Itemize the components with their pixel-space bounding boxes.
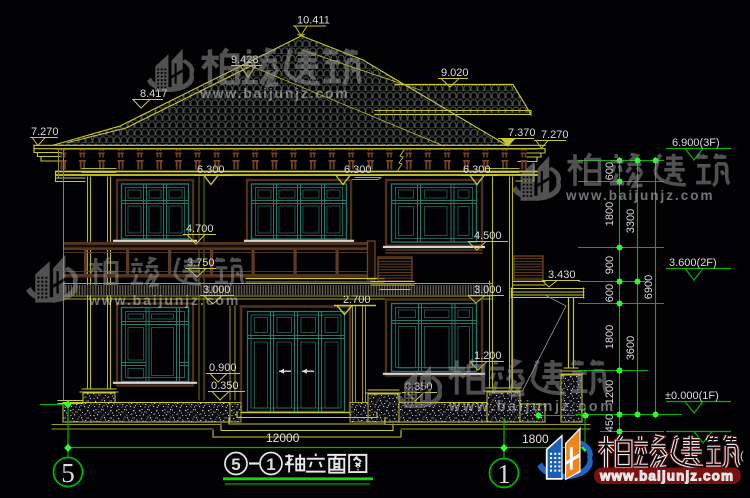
svg-text:1800: 1800: [522, 432, 549, 446]
svg-text:2.700: 2.700: [343, 294, 371, 306]
svg-text:4.700: 4.700: [186, 223, 214, 235]
svg-text:1: 1: [497, 459, 511, 489]
svg-text:9.020: 9.020: [441, 67, 469, 79]
svg-text:3.000: 3.000: [474, 284, 502, 296]
svg-text:www.baijunjz.com: www.baijunjz.com: [599, 469, 734, 484]
svg-text:12000: 12000: [266, 431, 300, 445]
svg-text:7.370: 7.370: [508, 127, 536, 139]
svg-text:3600: 3600: [625, 336, 637, 360]
svg-text:1800: 1800: [604, 325, 616, 349]
svg-text:www.baijunjz.com: www.baijunjz.com: [565, 188, 715, 203]
svg-text:www.baijunjz.com: www.baijunjz.com: [448, 399, 616, 415]
svg-text:0.350: 0.350: [211, 380, 239, 392]
svg-text:3.600(2F): 3.600(2F): [669, 257, 717, 269]
svg-text:6.300: 6.300: [197, 164, 225, 176]
svg-text:6.900(3F): 6.900(3F): [672, 137, 720, 149]
svg-text:450: 450: [604, 414, 616, 432]
svg-text:www.baijunjz.com: www.baijunjz.com: [199, 85, 350, 101]
svg-text:±0.000(1F): ±0.000(1F): [665, 390, 719, 402]
svg-text:7.270: 7.270: [31, 126, 59, 138]
svg-text:1800: 1800: [604, 202, 616, 226]
svg-text:www.baijunjz.com: www.baijunjz.com: [88, 292, 240, 308]
svg-text:600: 600: [604, 284, 616, 302]
svg-text:4.500: 4.500: [474, 230, 502, 242]
svg-text:900: 900: [604, 256, 616, 274]
svg-text:3.430: 3.430: [548, 269, 576, 281]
svg-text:10.411: 10.411: [297, 15, 330, 27]
svg-text:6.300: 6.300: [463, 164, 491, 176]
svg-text:6.300: 6.300: [344, 164, 372, 176]
svg-text:5: 5: [61, 458, 75, 488]
svg-text:0.900: 0.900: [209, 362, 237, 374]
svg-text:(: (: [740, 450, 744, 462]
svg-text:5: 5: [231, 455, 240, 474]
svg-text:1.200: 1.200: [474, 350, 502, 362]
svg-text:6900: 6900: [643, 275, 655, 299]
svg-text:7.270: 7.270: [541, 129, 569, 141]
svg-text:1: 1: [266, 455, 275, 474]
svg-text:3300: 3300: [625, 209, 637, 233]
